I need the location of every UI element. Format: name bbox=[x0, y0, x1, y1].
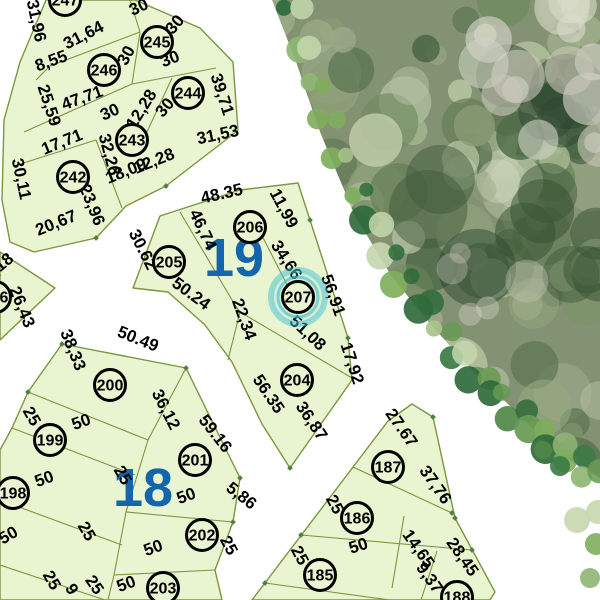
parcel-marker-207[interactable]: 207 bbox=[271, 270, 325, 324]
parcel-marker-245[interactable]: 245 bbox=[142, 27, 173, 58]
parcel-marker-243[interactable]: 243 bbox=[117, 125, 148, 156]
parcel-number: 207 bbox=[285, 290, 312, 307]
parcel-marker-187[interactable]: 187 bbox=[373, 452, 404, 483]
parcel-number: 200 bbox=[97, 378, 124, 395]
parcel-number: 201 bbox=[182, 453, 209, 470]
parcel-number: 242 bbox=[60, 170, 87, 187]
parcel-number: 202 bbox=[189, 528, 216, 545]
parcel-number: 187 bbox=[375, 460, 402, 477]
parcel-marker-205[interactable]: 205 bbox=[154, 247, 185, 278]
parcel-number: 243 bbox=[119, 133, 146, 150]
parcel-marker-206[interactable]: 206 bbox=[235, 212, 266, 243]
parcel-number: 204 bbox=[284, 373, 311, 390]
parcel-marker-242[interactable]: 242 bbox=[58, 162, 89, 193]
parcel-marker-199[interactable]: 199 bbox=[35, 425, 66, 456]
parcel-number: 246 bbox=[91, 63, 118, 80]
parcel-marker-204[interactable]: 204 bbox=[282, 365, 313, 396]
parcel-number: 245 bbox=[144, 35, 171, 52]
parcel-marker-186[interactable]: 186 bbox=[342, 503, 373, 534]
parcel-number: 244 bbox=[175, 86, 202, 103]
parcel-marker-200[interactable]: 200 bbox=[95, 370, 126, 401]
parcel-number: 205 bbox=[156, 255, 183, 272]
parcel-number: 199 bbox=[37, 433, 64, 450]
parcel-number: 206 bbox=[237, 220, 264, 237]
parcel-number: 185 bbox=[307, 568, 334, 585]
parcel-number: 247 bbox=[52, 0, 79, 10]
parcel-marker-185[interactable]: 185 bbox=[305, 560, 336, 591]
parcel-marker-201[interactable]: 201 bbox=[180, 445, 211, 476]
parcel-marker-244[interactable]: 244 bbox=[173, 78, 204, 109]
site-plan-map: 191831,9631,648,553030303025,5947,713012… bbox=[0, 0, 600, 600]
parcel-marker-203[interactable]: 203 bbox=[148, 573, 179, 600]
parcel-number: 203 bbox=[150, 581, 177, 598]
parcel-marker-188[interactable]: 188 bbox=[442, 582, 473, 600]
parcel-number: 198 bbox=[0, 486, 26, 503]
parcel-number: 196 bbox=[0, 290, 8, 307]
parcel-marker-246[interactable]: 246 bbox=[89, 55, 120, 86]
parcel-number: 188 bbox=[444, 590, 471, 600]
parcel-marker-202[interactable]: 202 bbox=[187, 520, 218, 551]
parcel-marker-198[interactable]: 198 bbox=[0, 478, 29, 509]
site-plan-viewport: 191831,9631,648,553030303025,5947,713012… bbox=[0, 0, 600, 600]
parcel-number: 186 bbox=[344, 511, 371, 528]
